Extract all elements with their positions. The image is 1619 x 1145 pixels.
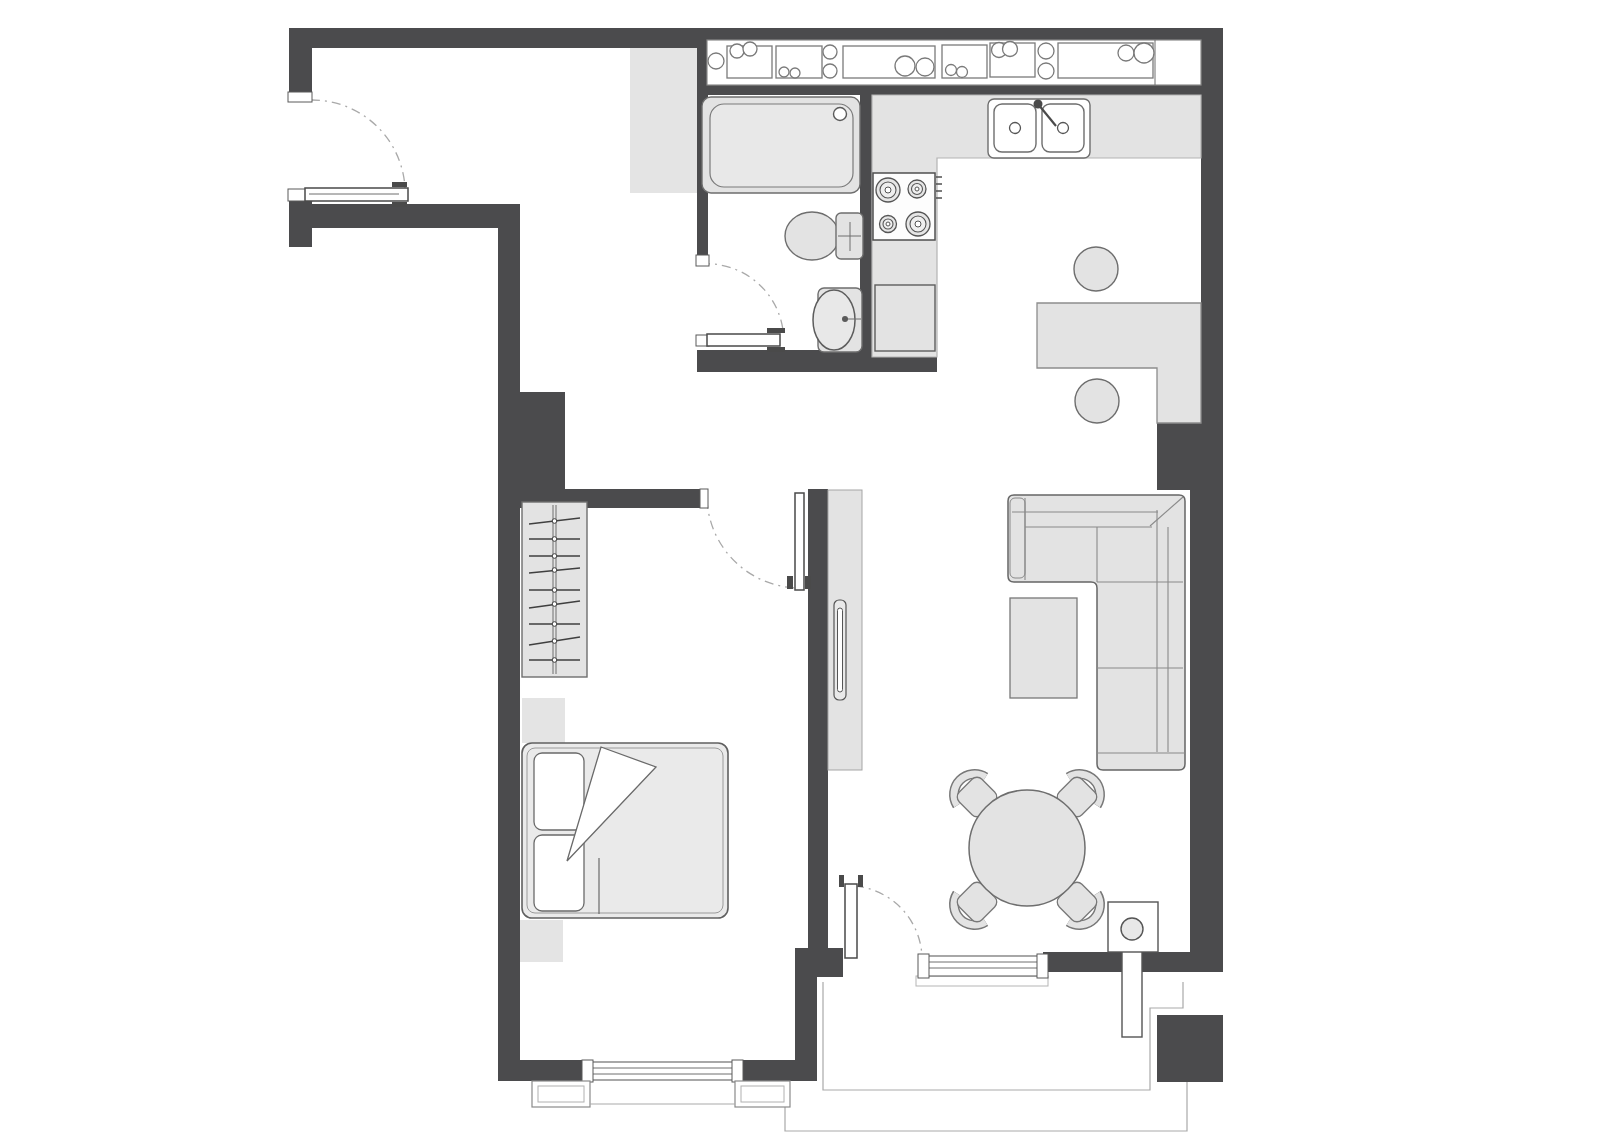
bathtub-drain [834, 108, 847, 121]
burner [876, 178, 900, 202]
dresser [522, 698, 565, 743]
bedroom-door-hinge-tick [805, 576, 811, 589]
wall-right-step-block [1157, 423, 1223, 490]
round-dining-table [969, 790, 1085, 906]
washbasin-bowl [813, 290, 855, 350]
bathroom-door-leaf [707, 334, 780, 346]
cabinet-jar [1038, 43, 1054, 59]
cabinet-jar [790, 68, 800, 78]
bathroom-door-hinge-tick [767, 328, 785, 333]
balcony-door-hinge-tick [839, 875, 844, 887]
coffee-table [1010, 598, 1077, 698]
cabinet-jar [946, 65, 957, 76]
balcony-door-swing-arc [855, 886, 922, 957]
balcony [532, 982, 1187, 1131]
entrance-door-jamb-top [288, 92, 312, 102]
cabinet-jar [957, 67, 968, 78]
wall-top-right [707, 28, 1223, 40]
wall-bedroom-bottom-left [498, 1060, 588, 1081]
cabinet-jar [708, 53, 724, 69]
wall-living-bottom [1043, 952, 1190, 972]
bedroom-window [582, 1060, 743, 1082]
bedroom-door-hinge-tick [787, 576, 793, 589]
bathroom-door-swing-arc [701, 264, 783, 330]
entrance-door-swing-arc [311, 100, 405, 188]
wall-bulkhead-above-kitchen [697, 85, 1223, 95]
bedroom-door-leaf [795, 493, 804, 590]
bedroom [520, 489, 811, 1082]
bathroom-door-jamb-top [696, 255, 709, 266]
nightstand [520, 920, 563, 962]
window-sill-box [532, 1081, 590, 1107]
living-room [828, 490, 1185, 1037]
wall-left-above-entrance-door [289, 48, 312, 92]
wardrobe-hanger-hooks [552, 519, 557, 663]
toilet-bowl [785, 212, 839, 260]
balcony-door-leaf [845, 884, 857, 958]
burner [906, 212, 930, 236]
wall-bedroom-left-upper [498, 204, 520, 392]
wall-balcony-door-jamb-block [795, 948, 843, 977]
sink-drain [1010, 123, 1021, 134]
balcony-door-hinge-tick [858, 875, 863, 887]
burner [880, 216, 897, 233]
cabinet-jar [1003, 42, 1018, 57]
entrance-hall [288, 48, 697, 207]
washbasin-tap-dot [842, 316, 848, 322]
bedroom-door-swing-arc [707, 500, 800, 588]
storage-area [630, 48, 697, 193]
utility-fixture-dial [1121, 918, 1143, 940]
cabinet-jar [823, 64, 837, 78]
cabinet-jar [743, 42, 757, 56]
cabinet-jar [1038, 63, 1054, 79]
bar-stool [1075, 379, 1119, 423]
balcony-railing-outer [785, 1082, 1187, 1131]
window-sill-box [735, 1081, 790, 1107]
cabinet-bowl [916, 58, 934, 76]
living-room-window [916, 954, 1048, 986]
wall-top-left [289, 28, 707, 48]
bathtub-inner [710, 104, 853, 187]
wall-right-upper [1201, 28, 1223, 490]
oven [875, 285, 935, 351]
floor-plan-page [0, 0, 1619, 1145]
bedroom-door-jamb [700, 489, 708, 508]
cabinet-bowl [1118, 45, 1134, 61]
cabinet-jar [823, 45, 837, 59]
pillow [534, 753, 584, 830]
bathroom [696, 97, 863, 352]
wall-right-lower [1190, 490, 1223, 972]
cabinet-bowl [895, 56, 915, 76]
tv-screen-inner [838, 608, 843, 692]
floor-plan-canvas [0, 0, 1619, 1145]
cabinet-jar [730, 44, 744, 58]
wall-bedroom-right-lower [795, 977, 817, 1081]
wall-divider-bedroom-living [808, 489, 828, 953]
wall-bedroom-left-lower [498, 490, 520, 1081]
bathroom-door-hinge-tick [767, 347, 785, 352]
cabinet-bowl [1134, 43, 1154, 63]
wall-bottom-right-block [1157, 1015, 1223, 1082]
burner [908, 180, 926, 198]
entrance-door-hinge-tick [392, 202, 407, 207]
bar-stool [1074, 247, 1118, 291]
sink-drain [1058, 123, 1069, 134]
cabinet-jar [779, 67, 789, 77]
entrance-door-hinge-tick [392, 182, 407, 187]
wall-hall-bottom [289, 204, 520, 228]
